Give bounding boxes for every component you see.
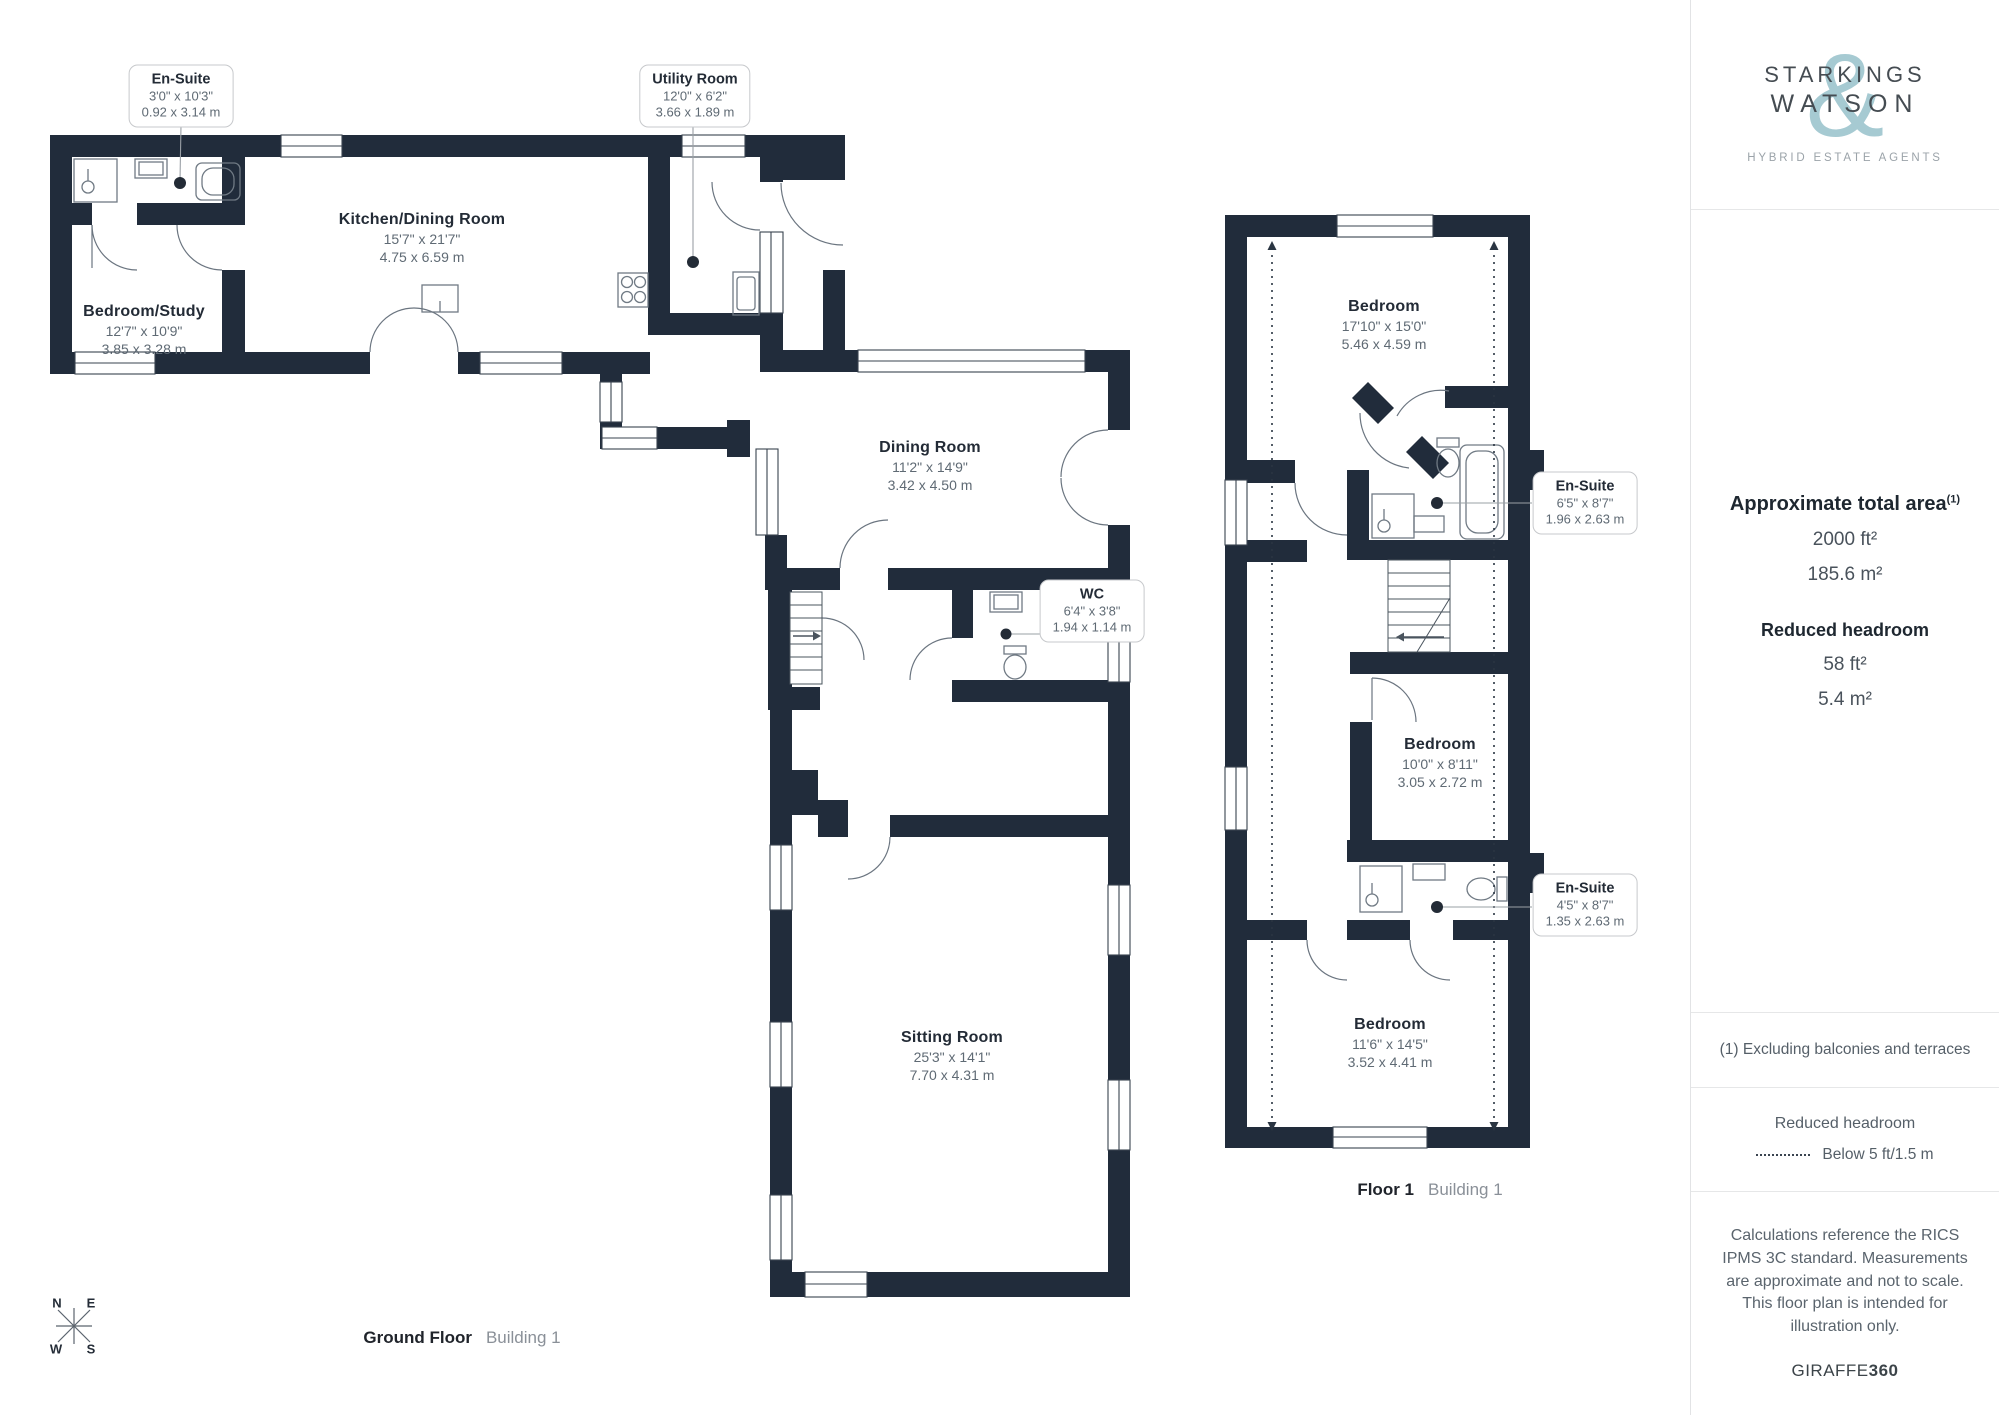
building-name: Building 1 <box>486 1328 561 1347</box>
total-area-footnote-marker: (1) <box>1947 493 1960 505</box>
compass-rose-icon <box>56 1308 92 1344</box>
callout-dims-metric: 1.96 x 2.63 m <box>1546 512 1625 527</box>
floorplan-page: Kitchen/Dining Room 15'7" x 21'7" 4.75 x… <box>0 0 2000 1415</box>
callout-title: Utility Room <box>652 72 737 88</box>
compass-west-label: W <box>50 1342 62 1357</box>
floor-name: Ground Floor <box>363 1328 472 1347</box>
callout-dims-metric: 1.35 x 2.63 m <box>1546 914 1625 929</box>
dotted-line-swatch-icon <box>1756 1154 1810 1156</box>
room-dims-metric: 5.46 x 4.59 m <box>1342 336 1427 352</box>
room-dims-metric: 3.05 x 2.72 m <box>1398 774 1483 790</box>
footnote-section: (1) Excluding balconies and terraces <box>1691 1013 1999 1088</box>
room-label-bedroom-2: Bedroom 10'0" x 8'11" 3.05 x 2.72 m <box>1398 736 1483 790</box>
footnote-text: (1) Excluding balconies and terraces <box>1720 1041 1971 1059</box>
room-label-sitting: Sitting Room 25'3" x 14'1" 7.70 x 4.31 m <box>901 1029 1003 1083</box>
callout-dims-imperial: 12'0" x 6'2" <box>652 89 737 104</box>
total-area-ft: 2000 ft² <box>1691 529 1999 551</box>
legend-label: Below 5 ft/1.5 m <box>1822 1146 1933 1164</box>
room-dims-metric: 7.70 x 4.31 m <box>901 1067 1003 1083</box>
total-area-title: Approximate total area(1) <box>1691 493 1999 516</box>
disclaimer-section: Calculations reference the RICS IPMS 3C … <box>1691 1192 1999 1414</box>
room-dims-metric: 3.52 x 4.41 m <box>1348 1054 1433 1070</box>
compass-south-label: S <box>87 1342 96 1357</box>
room-name: Dining Room <box>879 439 981 457</box>
callout-dims-metric: 0.92 x 3.14 m <box>142 105 221 120</box>
room-name: Bedroom/Study <box>83 303 205 321</box>
callout-wc: WC 6'4" x 3'8" 1.94 x 1.14 m <box>1040 580 1145 643</box>
floor1-walls <box>1225 215 1544 1148</box>
ground-floor-title: Ground FloorBuilding 1 <box>363 1328 560 1348</box>
room-label-bedroom-3: Bedroom 11'6" x 14'5" 3.52 x 4.41 m <box>1348 1016 1433 1070</box>
room-dims-imperial: 25'3" x 14'1" <box>901 1049 1003 1065</box>
reduced-headroom-ft: 58 ft² <box>1691 654 1999 676</box>
giraffe360-word: GIRAFFE <box>1791 1361 1868 1380</box>
room-dims-imperial: 12'7" x 10'9" <box>83 323 205 339</box>
disclaimer-text: Calculations reference the RICS IPMS 3C … <box>1718 1225 1972 1339</box>
headroom-legend-section: Reduced headroom Below 5 ft/1.5 m <box>1691 1088 1999 1192</box>
legend-row: Below 5 ft/1.5 m <box>1756 1146 1933 1164</box>
room-label-dining: Dining Room 11'2" x 14'9" 3.42 x 4.50 m <box>879 439 981 493</box>
room-label-bedroom-study: Bedroom/Study 12'7" x 10'9" 3.85 x 3.28 … <box>83 303 205 357</box>
callout-dims-imperial: 6'5" x 8'7" <box>1546 496 1625 511</box>
room-dims-imperial: 11'6" x 14'5" <box>1348 1036 1433 1052</box>
room-dims-imperial: 15'7" x 21'7" <box>339 231 505 247</box>
giraffe360-logo: GIRAFFE360 <box>1791 1361 1898 1381</box>
total-area-title-text: Approximate total area <box>1730 493 1947 515</box>
room-name: Bedroom <box>1348 1016 1433 1034</box>
reduced-headroom-m: 5.4 m² <box>1691 689 1999 711</box>
callout-title: WC <box>1053 587 1132 603</box>
callout-title: En-Suite <box>142 72 221 88</box>
floor1-title: Floor 1Building 1 <box>1357 1180 1502 1200</box>
total-area-m: 185.6 m² <box>1691 564 1999 586</box>
ground-floor-walls <box>50 135 1130 1297</box>
agency-logo: & STARKINGS WATSON HYBRID ESTATE AGENTS <box>1691 0 1999 210</box>
callout-dims-imperial: 4'5" x 8'7" <box>1546 898 1625 913</box>
floor1-stairs <box>1388 560 1450 652</box>
legend-title: Reduced headroom <box>1775 1115 1916 1133</box>
area-summary-section: Approximate total area(1) 2000 ft² 185.6… <box>1691 210 1999 1013</box>
info-sidebar: & STARKINGS WATSON HYBRID ESTATE AGENTS … <box>1690 0 1999 1415</box>
callout-ensuite-1: En-Suite 6'5" x 8'7" 1.96 x 2.63 m <box>1533 472 1638 535</box>
room-dims-imperial: 10'0" x 8'11" <box>1398 756 1483 772</box>
room-dims-imperial: 17'10" x 15'0" <box>1342 318 1427 334</box>
building-name: Building 1 <box>1428 1180 1503 1199</box>
room-label-kitchen-dining: Kitchen/Dining Room 15'7" x 21'7" 4.75 x… <box>339 211 505 265</box>
callout-title: En-Suite <box>1546 881 1625 897</box>
room-dims-metric: 3.85 x 3.28 m <box>83 341 205 357</box>
callout-ensuite-2: En-Suite 4'5" x 8'7" 1.35 x 2.63 m <box>1533 874 1638 937</box>
logo-line2: WATSON <box>1691 90 1999 119</box>
floor1-windows <box>1225 215 1433 1148</box>
room-dims-metric: 4.75 x 6.59 m <box>339 249 505 265</box>
room-name: Kitchen/Dining Room <box>339 211 505 229</box>
room-name: Bedroom <box>1342 298 1427 316</box>
logo-tagline: HYBRID ESTATE AGENTS <box>1691 152 1999 164</box>
compass-east-label: E <box>87 1296 96 1311</box>
room-dims-imperial: 11'2" x 14'9" <box>879 459 981 475</box>
room-label-bedroom-1: Bedroom 17'10" x 15'0" 5.46 x 4.59 m <box>1342 298 1427 352</box>
callout-ensuite-ground: En-Suite 3'0" x 10'3" 0.92 x 3.14 m <box>129 65 234 128</box>
logo-wordmark: STARKINGS WATSON <box>1691 62 1999 119</box>
room-dims-metric: 3.42 x 4.50 m <box>879 477 981 493</box>
room-name: Sitting Room <box>901 1029 1003 1047</box>
callout-title: En-Suite <box>1546 479 1625 495</box>
callout-utility: Utility Room 12'0" x 6'2" 3.66 x 1.89 m <box>639 65 750 128</box>
room-name: Bedroom <box>1398 736 1483 754</box>
callout-dims-metric: 3.66 x 1.89 m <box>652 105 737 120</box>
callout-dims-metric: 1.94 x 1.14 m <box>1053 620 1132 635</box>
floor-name: Floor 1 <box>1357 1180 1414 1199</box>
logo-line1: STARKINGS <box>1691 62 1999 88</box>
callout-dims-imperial: 6'4" x 3'8" <box>1053 604 1132 619</box>
giraffe360-number: 360 <box>1869 1361 1899 1380</box>
compass-north-label: N <box>52 1296 61 1311</box>
reduced-headroom-title: Reduced headroom <box>1691 620 1999 641</box>
reduced-headroom-lines <box>1268 241 1499 1131</box>
callout-dims-imperial: 3'0" x 10'3" <box>142 89 221 104</box>
ground-floor-fixtures <box>74 159 1026 679</box>
